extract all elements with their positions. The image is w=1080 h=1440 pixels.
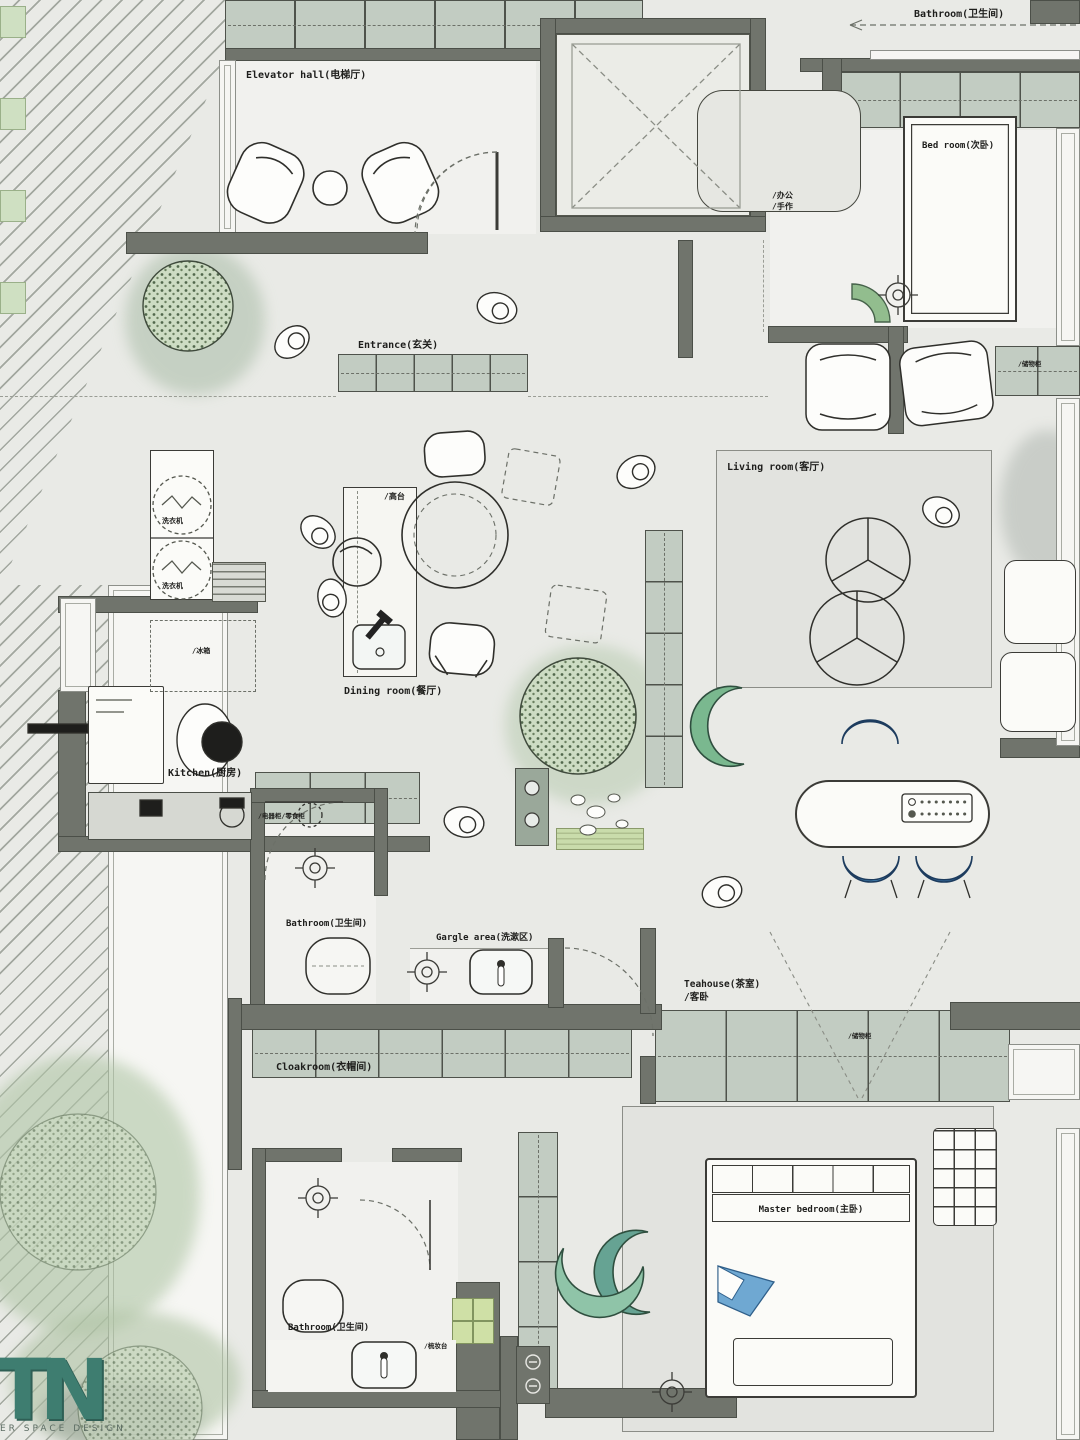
wall <box>678 240 693 358</box>
window <box>219 60 236 234</box>
planter-box <box>0 190 26 222</box>
wall <box>252 1148 266 1400</box>
wall <box>58 690 86 848</box>
bedroom-second-label: Bed room(次卧) <box>922 138 994 151</box>
watercolor-tree <box>125 245 265 395</box>
wall <box>126 232 428 254</box>
green-mat <box>556 828 644 850</box>
wall <box>640 928 656 1014</box>
teahouse-label: Teahouse(茶室) /客卧 <box>684 978 760 1004</box>
wall <box>228 998 242 1170</box>
dining-room-label: Dining room(餐厅) <box>344 682 442 697</box>
wall <box>252 1390 502 1408</box>
dresser-label: /梳妆台 <box>424 1340 447 1350</box>
wall <box>392 1148 462 1162</box>
sofa-module <box>1000 652 1076 732</box>
master-bedroom-label: Master bedroom(主卧) <box>759 1202 864 1215</box>
bed-pillows <box>712 1165 910 1193</box>
bathroom-mid-floor <box>264 802 376 1006</box>
wall <box>950 1002 1080 1030</box>
fridge-outline <box>150 620 256 692</box>
teahouse-line1: Teahouse(茶室) <box>684 978 760 991</box>
wall <box>540 18 556 232</box>
elevator-hall-floor <box>236 60 536 234</box>
dining-high-counter <box>343 487 417 677</box>
shower-mat <box>452 1298 494 1344</box>
wall <box>230 1004 662 1030</box>
gargle-area-label: Gargle area(洗漱区) <box>436 930 533 943</box>
high-counter-label: /高台 <box>384 491 405 502</box>
wall <box>1030 0 1080 24</box>
office-line: /办公 <box>772 190 793 201</box>
bed-end-bench <box>733 1338 893 1386</box>
living-room-rug <box>716 450 992 688</box>
wardrobe-right-label: /储物柜 <box>1018 358 1041 368</box>
wall <box>250 788 382 803</box>
window <box>1008 1044 1080 1100</box>
window <box>870 50 1080 60</box>
wall <box>374 788 388 896</box>
power-cabinet <box>516 1346 550 1404</box>
bed-headboard: Master bedroom(主卧) <box>712 1194 910 1222</box>
window <box>1056 1128 1080 1440</box>
living-room-label: Living room(客厅) <box>727 458 825 473</box>
bathroom-top-label: Bathroom(卫生间) <box>914 5 1004 20</box>
wall <box>768 326 908 343</box>
appliance-cabinet-label: /电器柜/零食柜 <box>258 810 305 820</box>
coat-hook-cabinet <box>515 768 549 846</box>
gargle-floor <box>410 948 550 1006</box>
bar-island <box>795 780 990 848</box>
teahouse-line2: /客卧 <box>684 991 760 1004</box>
wall <box>640 1056 656 1104</box>
logo-caption: ER SPACE DESIGN <box>0 1424 126 1434</box>
living-top-cabinet-tiles <box>995 346 1080 396</box>
step-block <box>212 562 266 602</box>
kitchen-prep-counter <box>88 686 164 784</box>
office-annotation: /办公 /手作 <box>772 190 793 212</box>
handcraft-line: /手作 <box>772 201 793 212</box>
window <box>1056 128 1080 346</box>
entrance-shoe-cabinet-tiles <box>338 354 528 392</box>
tn-logo: TN <box>0 1352 98 1428</box>
fridge-label: /冰箱 <box>192 646 210 656</box>
wall <box>800 58 1080 72</box>
elevator-hall-label: Elevator hall(电梯厅) <box>246 66 366 81</box>
guide-line <box>0 396 336 397</box>
bathroom-middle-label: Bathroom(卫生间) <box>286 916 367 929</box>
master-bed: Master bedroom(主卧) <box>705 1158 917 1398</box>
grid-ottoman <box>933 1128 997 1226</box>
washer-top-label: 洗衣机 <box>162 516 183 526</box>
floor-plan: Master bedroom(主卧) <box>0 0 1080 1440</box>
window <box>60 598 96 692</box>
kitchen-label: Kitchen(厨房) <box>168 764 242 779</box>
wall <box>548 938 564 1008</box>
planter-box <box>0 6 26 38</box>
tatami-storage-label: /储物柜 <box>848 1030 871 1040</box>
washer-bottom-label: 洗衣机 <box>162 581 183 591</box>
wall <box>888 326 904 434</box>
planter-box <box>0 282 26 314</box>
guide-line <box>528 396 768 397</box>
entrance-label: Entrance(玄关) <box>358 336 438 351</box>
teal-armchair <box>691 686 744 766</box>
kitchen-counter <box>88 792 252 840</box>
planter-box <box>0 98 26 130</box>
wall <box>250 788 265 1010</box>
wall <box>540 18 766 34</box>
guide-line <box>763 240 764 332</box>
bathroom-lower-label: Bathroom(卫生间) <box>288 1320 369 1333</box>
hall-cabinet-column-tiles <box>645 530 683 788</box>
sofa-module <box>1004 560 1076 644</box>
cloakroom-label: Cloakroom(衣帽间) <box>276 1058 372 1073</box>
wall <box>540 216 766 232</box>
